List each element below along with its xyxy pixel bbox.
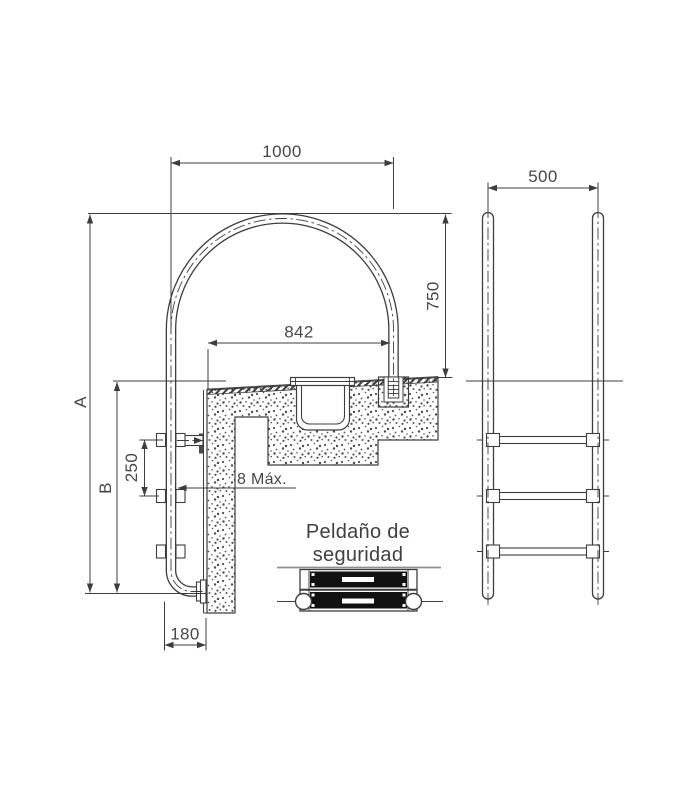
drawing-canvas: 1000 500 750 842 A B 250 180 8 Máx. Peld…	[0, 0, 700, 800]
arrowhead	[114, 382, 120, 391]
arrowhead	[141, 487, 147, 496]
front-rung-1	[477, 434, 609, 447]
front-rung-2	[477, 490, 609, 503]
arrowhead	[141, 440, 147, 449]
dim-A-label: A	[71, 396, 90, 408]
gap-note-label: 8 Máx.	[237, 471, 287, 488]
tread-bolt	[403, 583, 406, 586]
overflow-gutter	[291, 378, 355, 431]
rung-flange	[157, 545, 166, 558]
arrowhead	[208, 340, 217, 346]
step-tube-section-right	[406, 594, 422, 610]
dim-842-label: 842	[284, 323, 314, 342]
tread-bolt	[312, 583, 315, 586]
arrowhead	[87, 584, 93, 593]
front-rung-3	[477, 545, 609, 558]
safety-step-detail	[277, 568, 443, 612]
dim-B-label: B	[96, 482, 115, 494]
safety-step-title-line2: seguridad	[313, 544, 404, 566]
rung-flange	[176, 434, 185, 447]
rung-tube	[499, 493, 587, 500]
arrowhead	[171, 160, 180, 166]
dim-750-label: 750	[424, 281, 443, 311]
arrowhead	[87, 215, 93, 224]
tread-bolt	[312, 604, 315, 607]
rung-flange	[176, 545, 185, 558]
rung-flange	[487, 545, 500, 558]
rung-tube	[499, 548, 587, 555]
safety-step-title-line1: Peldaño de	[306, 521, 410, 543]
tread-bolt	[403, 604, 406, 607]
gutter-inner-wall	[302, 384, 345, 424]
side-view-rungs	[157, 434, 204, 559]
tread-slot	[342, 577, 374, 582]
tread-bolt	[403, 594, 406, 597]
tread-bolt	[312, 573, 315, 576]
tread-slot	[342, 599, 374, 604]
rung-flange	[487, 490, 500, 503]
tread-bolt	[312, 594, 315, 597]
step-tube-section-left	[296, 594, 312, 610]
dim-180-label: 180	[170, 625, 200, 644]
arrowhead	[589, 185, 598, 191]
rung-flange	[487, 434, 500, 447]
rung-flange	[176, 490, 185, 503]
tread-bolt	[403, 573, 406, 576]
arrowhead	[442, 369, 448, 378]
dim-500-label: 500	[528, 167, 558, 186]
dim-1000-label: 1000	[262, 142, 301, 161]
arrowhead	[114, 584, 120, 593]
arrowhead	[442, 215, 448, 224]
pool-ladder-technical-drawing: 1000 500 750 842 A B 250 180 8 Máx. Peld…	[0, 0, 700, 800]
arrowhead	[385, 160, 394, 166]
rung-tube	[499, 437, 587, 444]
dim-250-label: 250	[122, 453, 141, 483]
arrowhead	[488, 185, 497, 191]
ladder-front-view	[466, 206, 623, 608]
